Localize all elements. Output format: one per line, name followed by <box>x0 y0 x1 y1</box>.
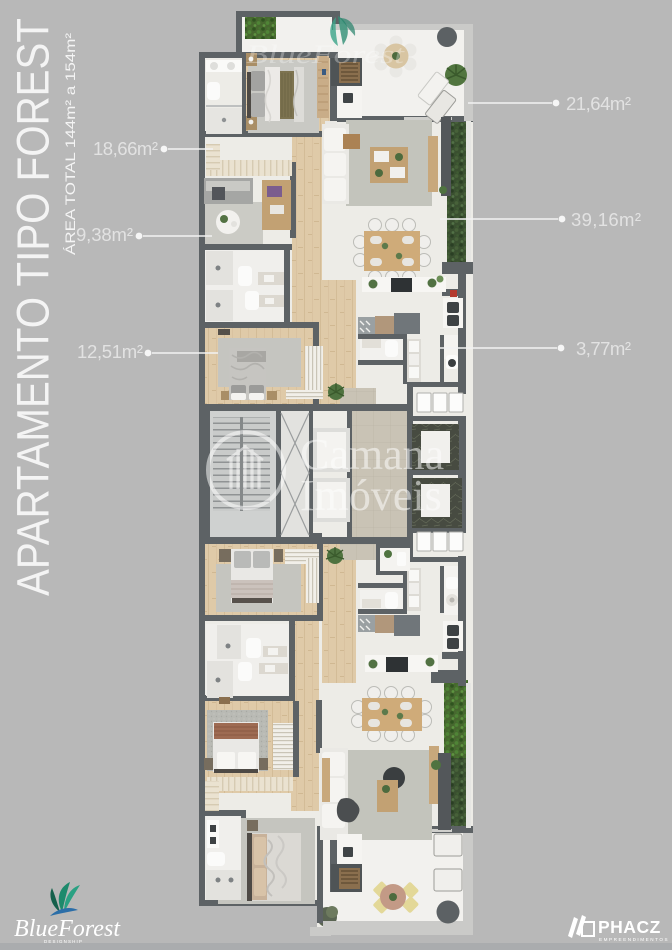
svg-text:18,66m²: 18,66m² <box>93 138 158 159</box>
svg-text:BlueForest: BlueForest <box>246 40 405 69</box>
svg-text:PHACZ: PHACZ <box>598 917 661 937</box>
svg-text:APARTAMENTO TIPO FOREST: APARTAMENTO TIPO FOREST <box>8 18 59 596</box>
svg-text:39,16m²: 39,16m² <box>571 209 641 230</box>
svg-text:12,51m²: 12,51m² <box>77 341 143 362</box>
svg-text:DESIGNSHIP: DESIGNSHIP <box>44 939 83 944</box>
svg-text:9,38m²: 9,38m² <box>76 224 133 245</box>
svg-text:EMPREENDIMENTOS: EMPREENDIMENTOS <box>599 937 669 942</box>
svg-text:ÁREA TOTAL 144m² a 154m²: ÁREA TOTAL 144m² a 154m² <box>62 33 78 255</box>
svg-text:Imóveis: Imóveis <box>300 471 442 520</box>
svg-text:21,64m²: 21,64m² <box>566 93 631 114</box>
svg-text:3,77m²: 3,77m² <box>576 338 631 359</box>
